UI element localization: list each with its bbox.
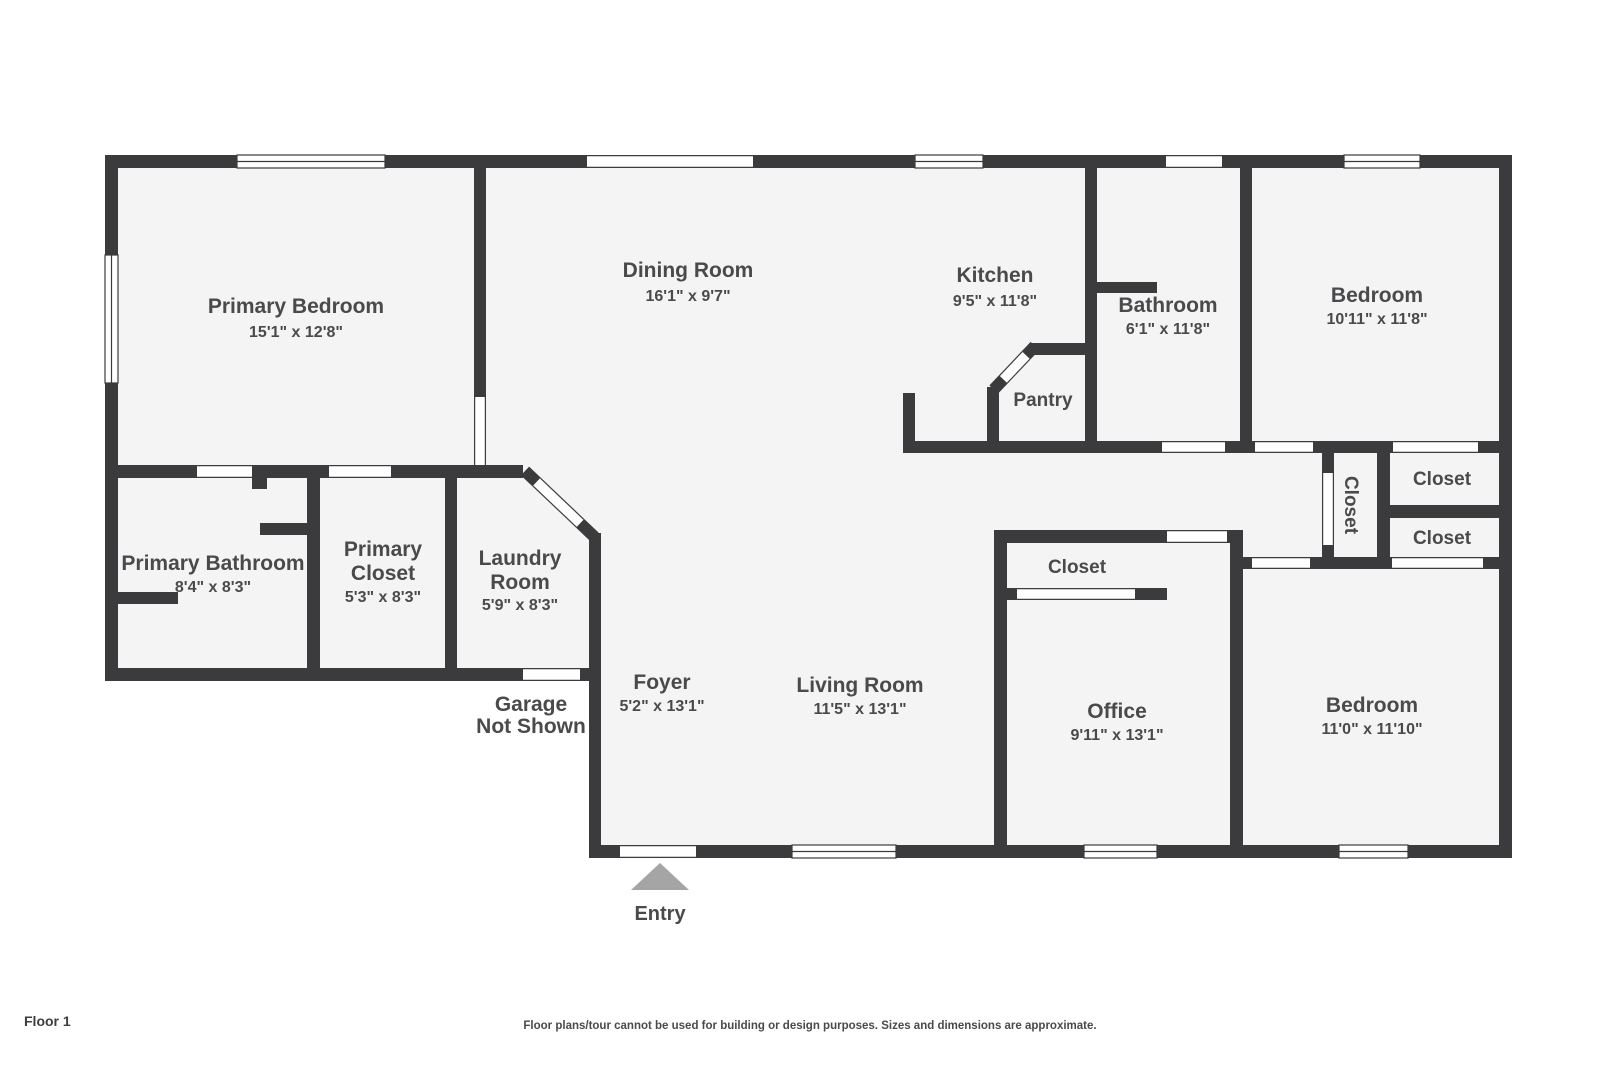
room-dims: 16'1" x 9'7" bbox=[645, 288, 730, 305]
room-name: Dining Room bbox=[623, 259, 754, 282]
room-dims: 11'0" x 11'10" bbox=[1321, 721, 1422, 738]
room-label-laundry-room: Laundry Room 5'9" x 8'3" bbox=[479, 547, 562, 614]
room-dims: 5'2" x 13'1" bbox=[619, 698, 704, 715]
room-label-office-closet: Closet bbox=[1048, 557, 1107, 578]
room-label-pantry: Pantry bbox=[1013, 390, 1073, 411]
room-name: Office bbox=[1087, 700, 1147, 723]
room-name: Closet bbox=[1413, 528, 1472, 549]
room-name: Closet bbox=[1413, 469, 1472, 490]
room-name: Closet bbox=[1048, 557, 1107, 578]
room-name: Closet bbox=[351, 562, 415, 585]
room-name: Room bbox=[490, 571, 550, 594]
room-dims: 11'5" x 13'1" bbox=[813, 701, 906, 718]
room-label-bedroom-closet-upper: Closet bbox=[1413, 469, 1472, 490]
room-name: Bathroom bbox=[1118, 294, 1217, 317]
room-dims: 5'9" x 8'3" bbox=[482, 597, 558, 614]
room-label-bedroom-top-right: Bedroom 10'11" x 11'8" bbox=[1326, 284, 1427, 328]
room-name: Kitchen bbox=[956, 264, 1033, 287]
room-name: Laundry bbox=[479, 547, 562, 570]
garage-note-line1: Garage bbox=[495, 693, 567, 716]
disclaimer-text: Floor plans/tour cannot be used for buil… bbox=[523, 1020, 1096, 1032]
entry-marker: Entry bbox=[631, 863, 689, 925]
room-dims: 9'11" x 13'1" bbox=[1070, 727, 1163, 744]
room-name: Pantry bbox=[1013, 390, 1073, 411]
room-dims: 10'11" x 11'8" bbox=[1326, 311, 1427, 328]
room-name: Bedroom bbox=[1331, 284, 1423, 307]
entry-label: Entry bbox=[634, 903, 686, 925]
floor-plan-page: Primary Bedroom 15'1" x 12'8" Dining Roo… bbox=[0, 0, 1620, 1080]
room-name: Primary Bedroom bbox=[208, 295, 384, 318]
room-label-bathroom: Bathroom 6'1" x 11'8" bbox=[1118, 294, 1217, 338]
room-label-primary-closet: Primary Closet 5'3" x 8'3" bbox=[344, 538, 423, 606]
room-dims: 15'1" x 12'8" bbox=[249, 324, 343, 341]
room-dims: 6'1" x 11'8" bbox=[1126, 321, 1210, 338]
garage-note: Garage Not Shown bbox=[476, 693, 586, 738]
room-name: Bedroom bbox=[1326, 694, 1418, 717]
room-label-living-room: Living Room 11'5" x 13'1" bbox=[796, 674, 923, 718]
room-label-bedroom-bottom-right: Bedroom 11'0" x 11'10" bbox=[1321, 694, 1422, 738]
room-name: Primary Bathroom bbox=[121, 552, 304, 575]
room-dims: 5'3" x 8'3" bbox=[345, 589, 421, 606]
room-name: Foyer bbox=[633, 671, 690, 694]
room-dims: 9'5" x 11'8" bbox=[953, 293, 1037, 310]
room-name: Primary bbox=[344, 538, 423, 561]
room-label-bedroom-closet-lower: Closet bbox=[1413, 528, 1472, 549]
room-name: Living Room bbox=[796, 674, 923, 697]
floor-label: Floor 1 bbox=[24, 1013, 71, 1029]
garage-note-line2: Not Shown bbox=[476, 715, 586, 738]
room-label-hall-closet: Closet bbox=[1340, 476, 1361, 535]
floor-plan: Primary Bedroom 15'1" x 12'8" Dining Roo… bbox=[0, 0, 1620, 1080]
room-name: Closet bbox=[1340, 476, 1361, 535]
room-dims: 8'4" x 8'3" bbox=[175, 579, 251, 596]
entry-arrow-icon bbox=[631, 863, 689, 890]
